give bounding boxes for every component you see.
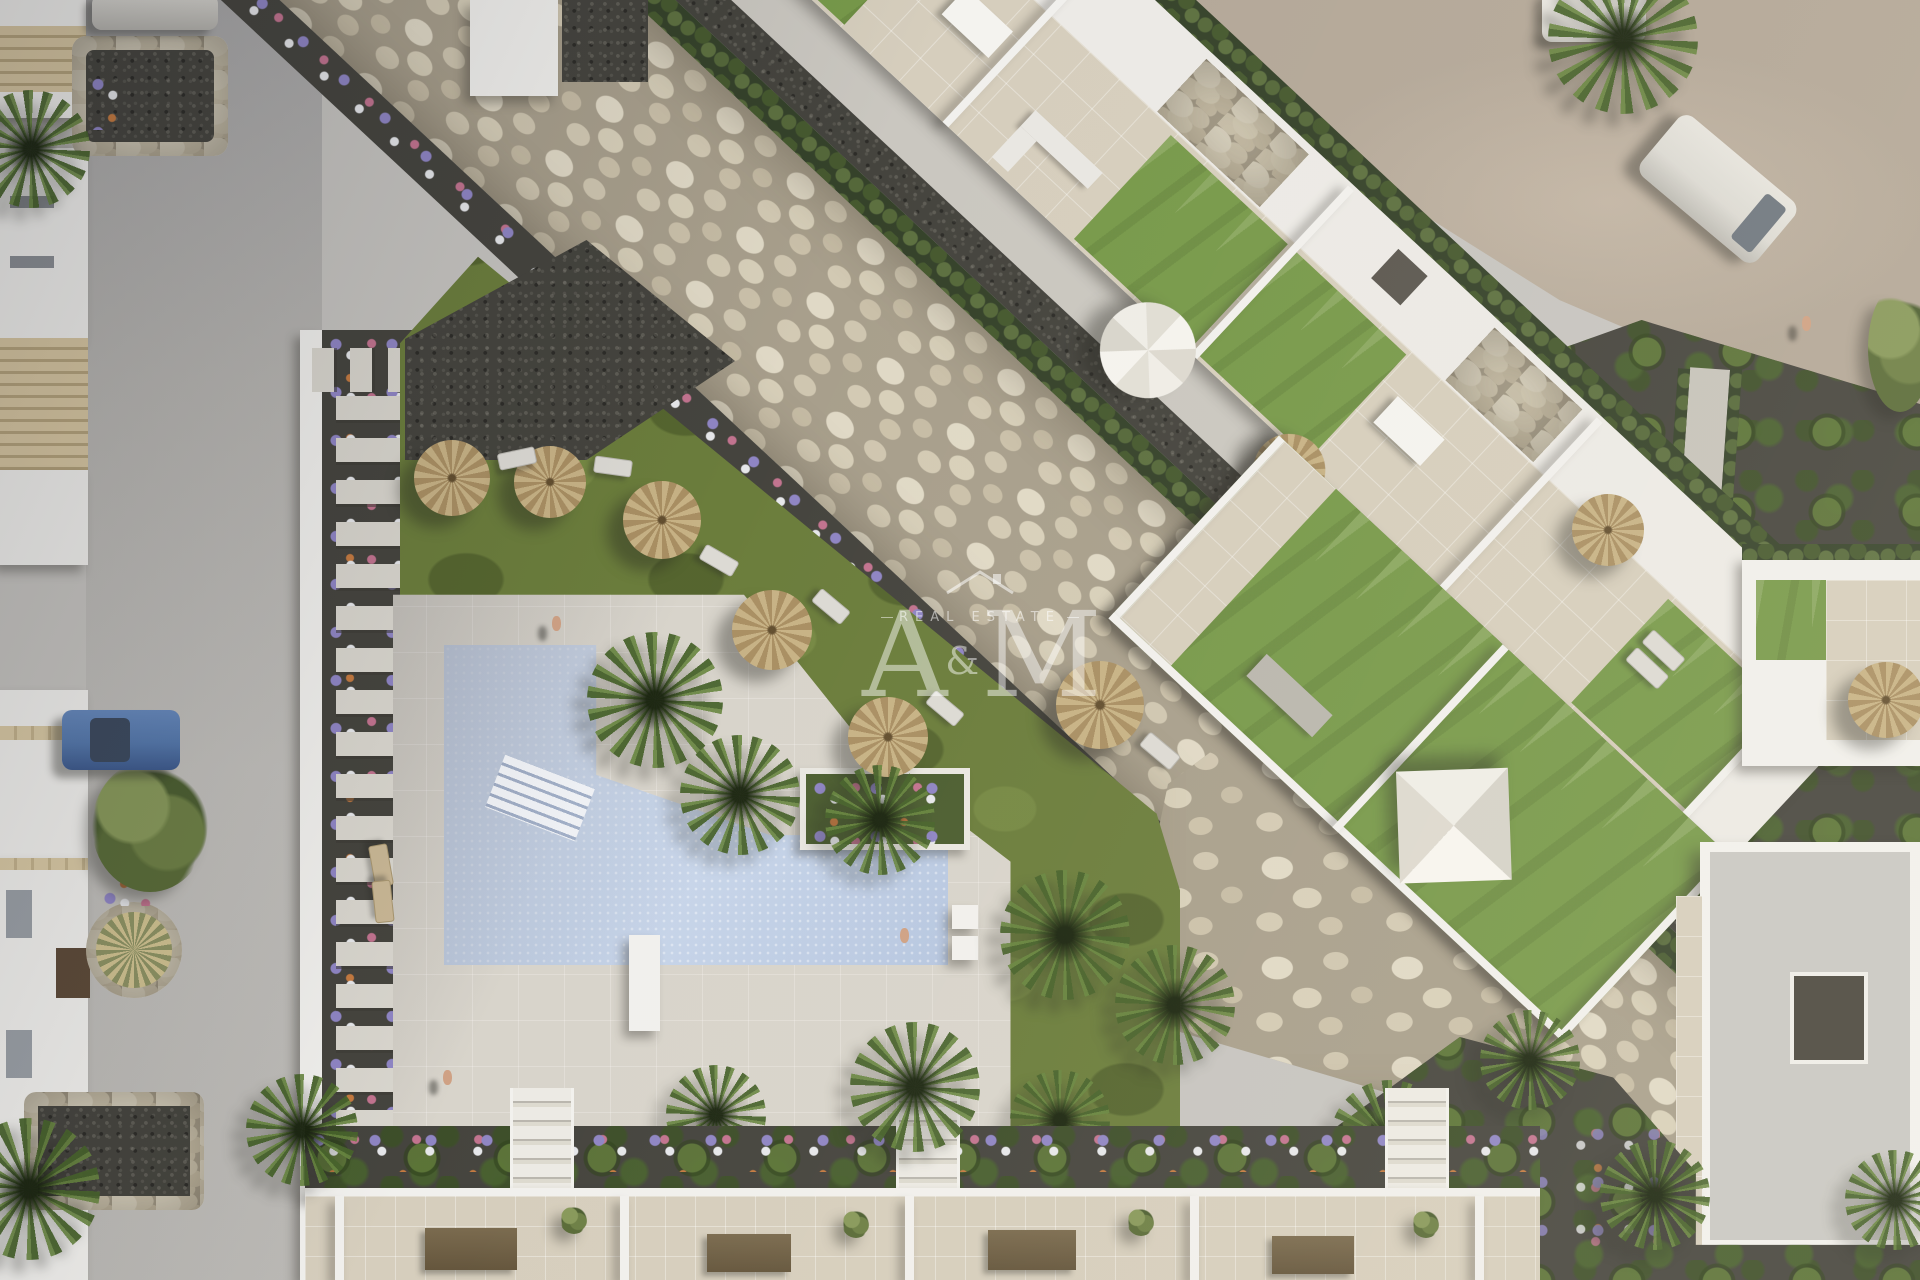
bed-flowers bbox=[84, 70, 128, 130]
palm-tree bbox=[850, 1022, 980, 1152]
person-on-road bbox=[1802, 316, 1811, 331]
palm-tree bbox=[1000, 870, 1130, 1000]
person-in-pool bbox=[900, 928, 909, 943]
straw-umbrella bbox=[1848, 662, 1920, 738]
pampas-grass bbox=[96, 912, 172, 988]
pool-shower-box bbox=[952, 936, 978, 960]
blue-car bbox=[62, 710, 180, 770]
palm-tree bbox=[825, 765, 935, 875]
terrace-plant bbox=[1412, 1210, 1440, 1238]
terrace-divider-wall bbox=[335, 1196, 344, 1280]
silver-car bbox=[92, 0, 218, 30]
bed-gravel bbox=[562, 0, 648, 82]
upper-slab-path bbox=[312, 348, 408, 392]
palm-tree bbox=[680, 735, 800, 855]
terrace-table bbox=[1272, 1236, 1354, 1274]
right-building-lawn bbox=[1756, 580, 1826, 660]
terrace-plant bbox=[560, 1206, 588, 1234]
person-on-deck bbox=[443, 1070, 452, 1085]
street-tree bbox=[92, 760, 208, 892]
terrace-divider-wall bbox=[620, 1196, 629, 1280]
terrace-divider-wall bbox=[905, 1196, 914, 1280]
palm-tree bbox=[1600, 1140, 1710, 1250]
townhouse-window bbox=[10, 256, 54, 268]
townhouse-block bbox=[0, 470, 88, 565]
terrace-divider-wall bbox=[1190, 1196, 1199, 1280]
straw-umbrella bbox=[623, 481, 701, 559]
palm-tree bbox=[1480, 1010, 1580, 1110]
terrace-plant bbox=[1127, 1208, 1155, 1236]
roof-recess bbox=[1790, 972, 1868, 1064]
deck-steps bbox=[510, 1088, 574, 1192]
terrace-table bbox=[988, 1230, 1076, 1270]
pool-shower-box bbox=[952, 905, 978, 929]
white-pyramid-parasol bbox=[1396, 768, 1512, 884]
townhouse-window bbox=[6, 890, 32, 938]
palm-tree bbox=[246, 1074, 358, 1186]
palm-tree bbox=[1115, 945, 1235, 1065]
car-glass bbox=[90, 718, 130, 762]
pergola-roof bbox=[0, 338, 88, 470]
wall-coping bbox=[0, 858, 88, 870]
straw-umbrella bbox=[1056, 661, 1144, 749]
straw-umbrella bbox=[732, 590, 812, 670]
person-on-deck bbox=[552, 616, 561, 631]
pool-pier bbox=[629, 935, 660, 1031]
garden-wall-top bbox=[470, 0, 558, 96]
right-building-hedge bbox=[1742, 544, 1920, 560]
townhouse-window bbox=[6, 1030, 32, 1078]
terrace-table bbox=[707, 1234, 791, 1272]
border-stepping-slabs bbox=[336, 396, 402, 1126]
terrace-table bbox=[425, 1228, 517, 1270]
aerial-render-scene: REAL ESTATE A&M bbox=[0, 0, 1920, 1280]
pampas-ring bbox=[86, 902, 182, 998]
straw-umbrella bbox=[1572, 494, 1644, 566]
deck-steps bbox=[1385, 1088, 1449, 1192]
terrace-divider-wall bbox=[1475, 1196, 1484, 1280]
straw-umbrella bbox=[414, 440, 490, 516]
townhouse-door bbox=[56, 948, 90, 998]
terrace-plant bbox=[842, 1210, 870, 1238]
